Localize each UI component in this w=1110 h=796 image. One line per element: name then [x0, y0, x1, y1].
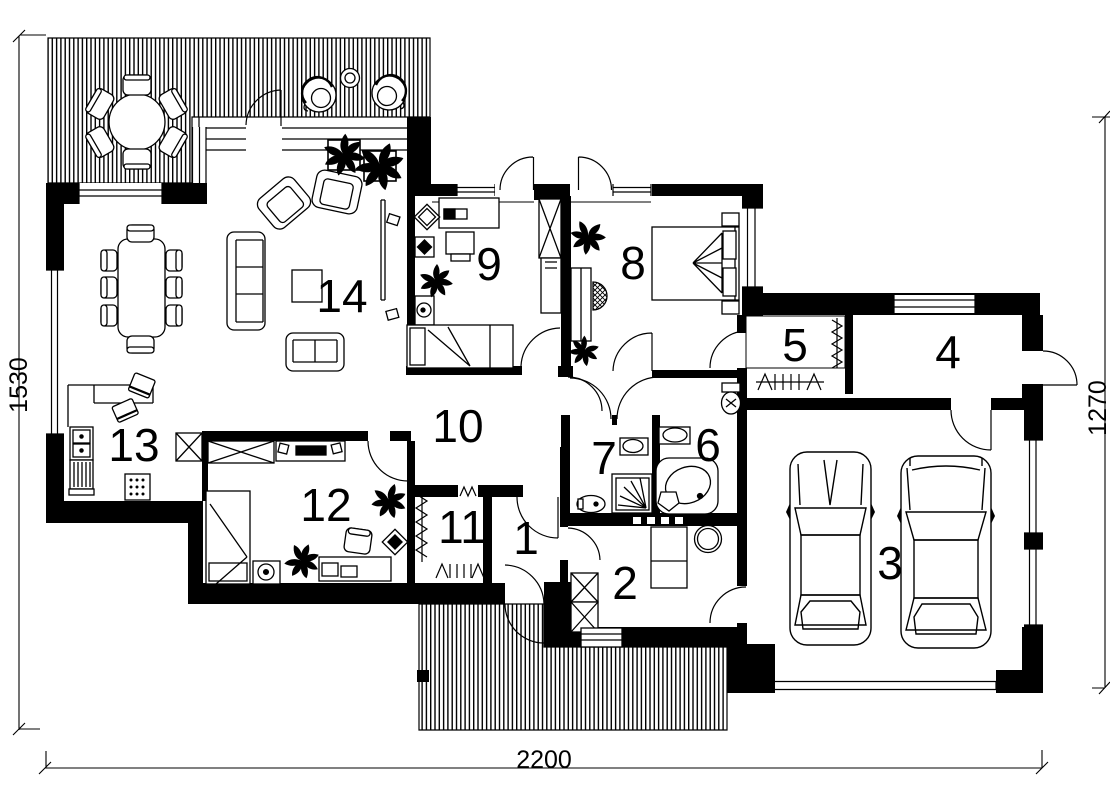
svg-text:8: 8 — [620, 237, 646, 289]
svg-text:1: 1 — [513, 512, 539, 564]
svg-text:2200: 2200 — [516, 746, 572, 774]
svg-text:11: 11 — [438, 501, 486, 553]
svg-text:13: 13 — [108, 419, 159, 471]
svg-text:10: 10 — [432, 400, 483, 452]
svg-text:7: 7 — [591, 432, 617, 484]
svg-text:14: 14 — [316, 270, 367, 322]
svg-text:4: 4 — [935, 326, 961, 378]
svg-text:1270: 1270 — [1084, 380, 1110, 436]
svg-text:1530: 1530 — [5, 357, 33, 413]
svg-text:6: 6 — [695, 419, 721, 471]
svg-text:12: 12 — [300, 479, 351, 531]
svg-text:3: 3 — [877, 537, 903, 589]
svg-text:9: 9 — [476, 238, 502, 290]
svg-text:5: 5 — [782, 319, 808, 371]
svg-text:2: 2 — [612, 557, 638, 609]
